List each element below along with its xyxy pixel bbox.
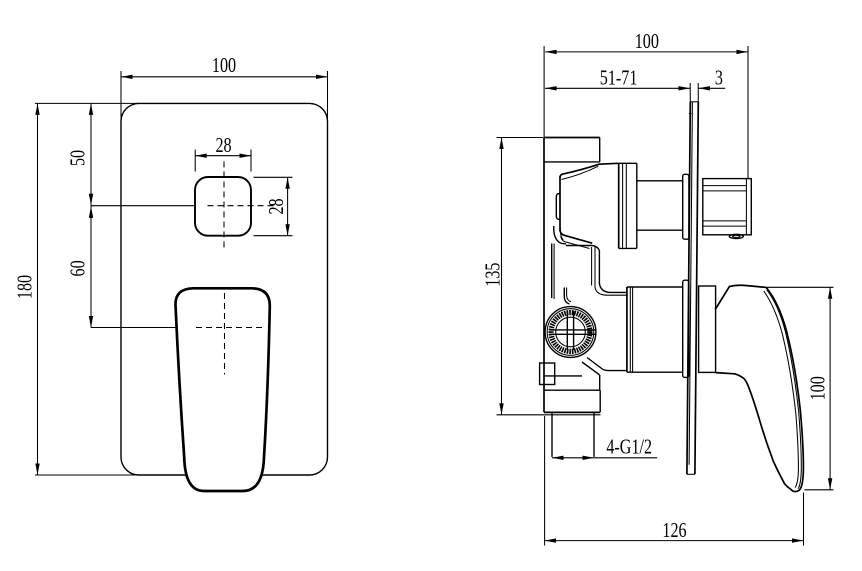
svg-text:28: 28 [215, 134, 231, 158]
svg-text:100: 100 [806, 376, 830, 400]
svg-text:100: 100 [635, 30, 659, 54]
svg-text:28: 28 [265, 198, 289, 214]
svg-text:60: 60 [66, 260, 90, 276]
svg-text:50: 50 [66, 150, 90, 166]
svg-text:135: 135 [481, 263, 505, 287]
svg-text:100: 100 [212, 54, 236, 78]
svg-text:180: 180 [13, 275, 37, 299]
svg-text:126: 126 [662, 519, 686, 543]
svg-text:4-G1/2: 4-G1/2 [606, 435, 652, 459]
svg-text:51-71: 51-71 [600, 66, 638, 90]
svg-text:3: 3 [715, 66, 723, 90]
